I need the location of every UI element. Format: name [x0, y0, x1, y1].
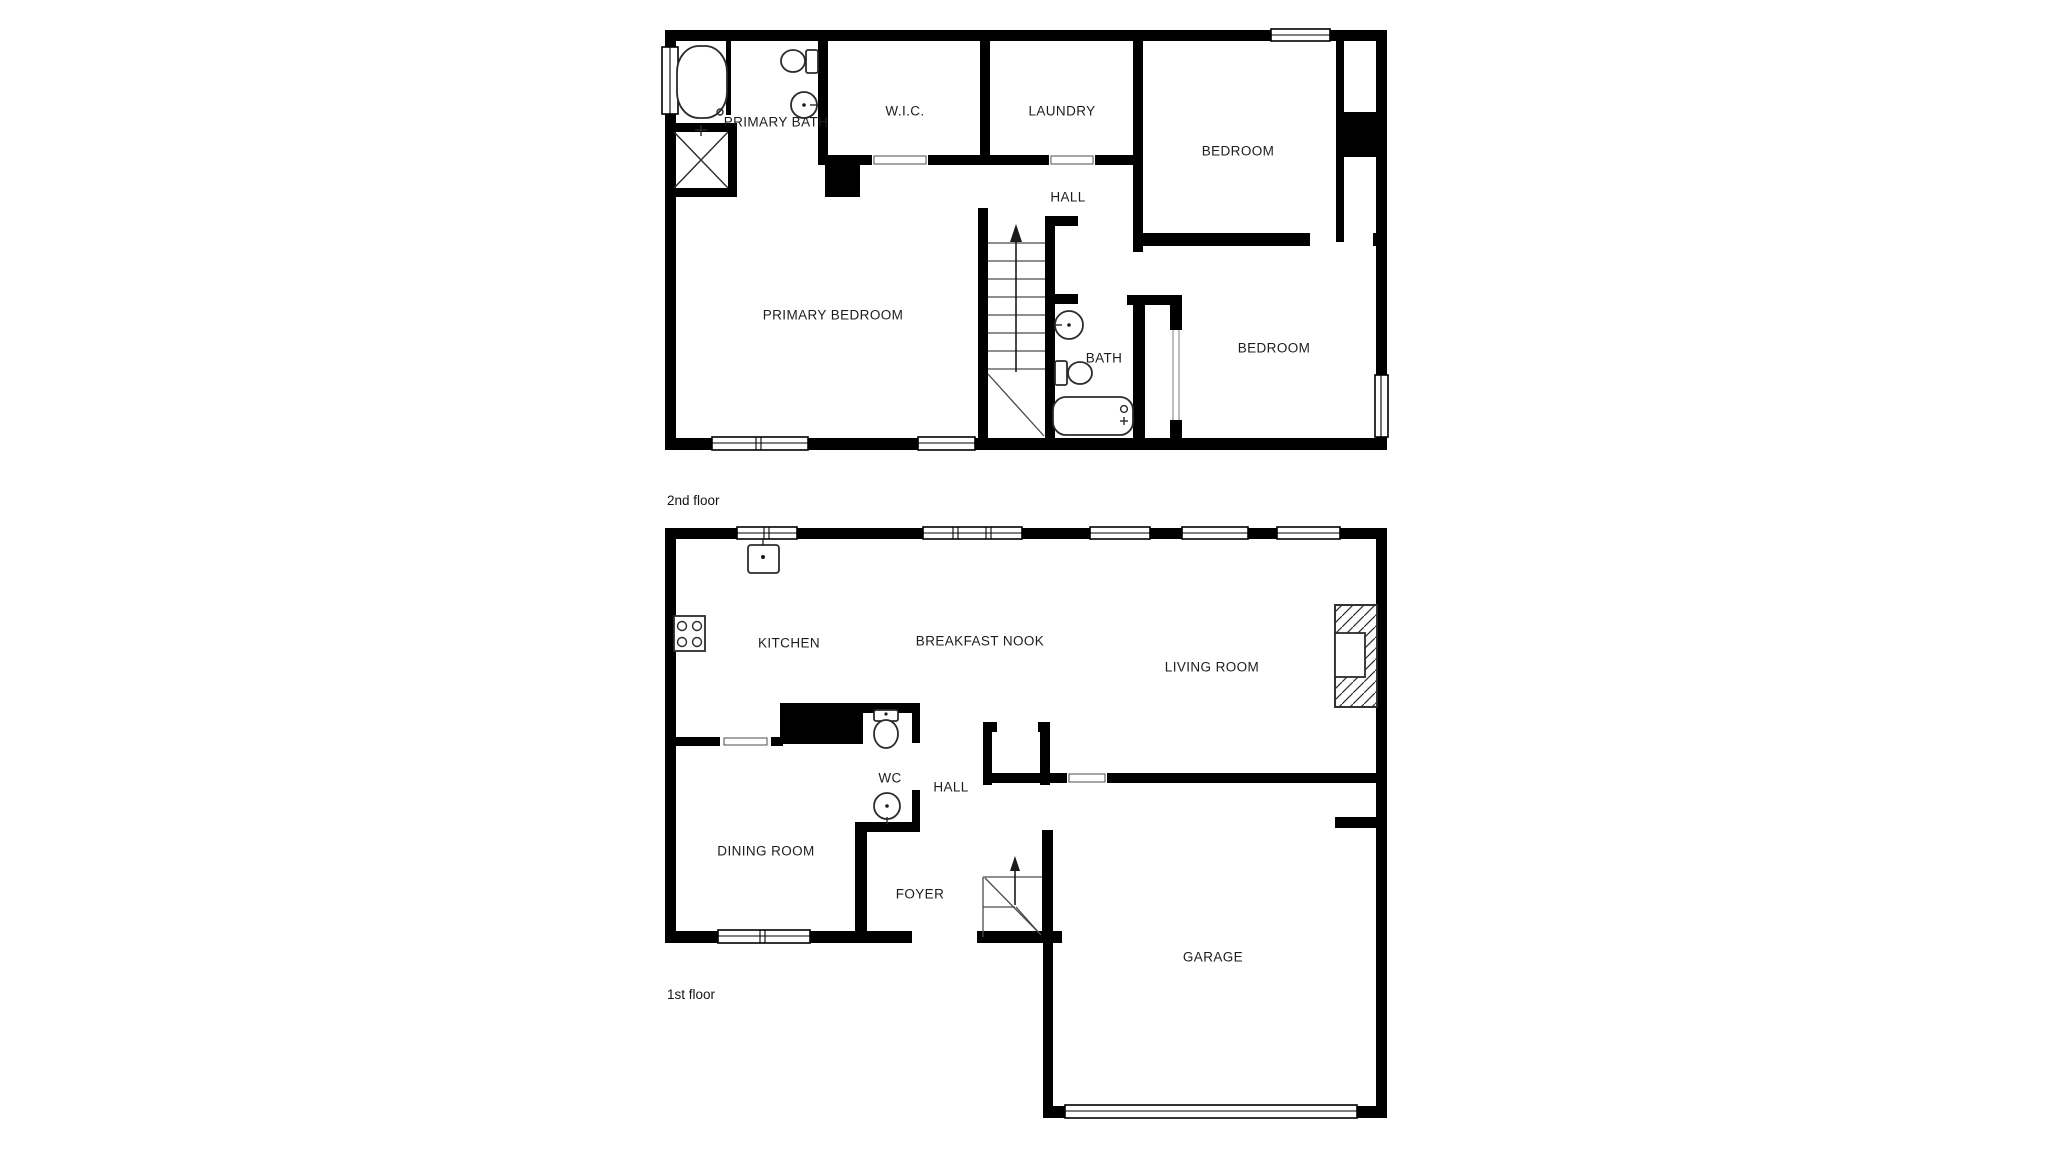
- door-leaf: [724, 738, 767, 745]
- stairs-up-icon: [988, 224, 1045, 436]
- sink-icon: [874, 793, 900, 824]
- bathtub-icon: [677, 46, 727, 118]
- floor-plan-drawing: PRIMARY BATH W.I.C. LAUNDRY BEDROOM HALL…: [0, 0, 2048, 1151]
- room-label-kitchen: KITCHEN: [758, 636, 820, 651]
- sink-icon: [1055, 311, 1083, 339]
- closet-slider: [1173, 330, 1179, 420]
- room-label-bedroom-top: BEDROOM: [1202, 144, 1275, 159]
- window: [1375, 375, 1388, 437]
- toilet-icon: [874, 710, 898, 748]
- room-label-bedroom-right: BEDROOM: [1238, 341, 1311, 356]
- garage-door: [1065, 1105, 1357, 1118]
- second-floor-plan: PRIMARY BATH W.I.C. LAUNDRY BEDROOM HALL…: [662, 29, 1388, 508]
- room-label-breakfast-nook: BREAKFAST NOOK: [916, 634, 1044, 649]
- room-label-primary-bedroom: PRIMARY BEDROOM: [763, 308, 904, 323]
- second-floor-walls: [665, 30, 1387, 450]
- window: [1277, 527, 1340, 539]
- kitchen-sink-icon: [748, 538, 779, 573]
- bath-tub-icon: [1053, 397, 1133, 435]
- fireplace-icon: [1335, 605, 1377, 707]
- room-label-hall-1f: HALL: [933, 780, 968, 795]
- room-label-wic: W.I.C.: [885, 104, 924, 119]
- room-label-hall-2f: HALL: [1050, 190, 1085, 205]
- stove-icon: [674, 616, 705, 651]
- room-label-wc: WC: [878, 771, 901, 786]
- room-label-primary-bath: PRIMARY BATH: [724, 115, 829, 130]
- window: [662, 47, 678, 114]
- room-label-dining-room: DINING ROOM: [717, 844, 814, 859]
- window: [718, 930, 810, 943]
- room-label-laundry: LAUNDRY: [1028, 104, 1095, 119]
- window: [1182, 527, 1248, 539]
- door-leaf: [874, 156, 926, 164]
- stairs-up-icon: [983, 856, 1042, 937]
- room-label-foyer: FOYER: [896, 887, 945, 902]
- room-label-bath: BATH: [1086, 351, 1123, 366]
- first-floor-plan: KITCHEN BREAKFAST NOOK LIVING ROOM WC HA…: [665, 527, 1387, 1118]
- window: [923, 527, 1022, 539]
- room-label-garage: GARAGE: [1183, 950, 1243, 965]
- door-leaf: [1051, 156, 1093, 164]
- window: [737, 527, 797, 539]
- floor-label-1st: 1st floor: [667, 987, 716, 1002]
- toilet-icon: [781, 50, 818, 73]
- window: [1090, 527, 1150, 539]
- floor-label-2nd: 2nd floor: [667, 493, 720, 508]
- shower-icon: [674, 125, 728, 188]
- window: [1271, 29, 1330, 41]
- door-leaf: [1069, 774, 1105, 782]
- window: [712, 437, 808, 450]
- window: [918, 437, 975, 450]
- room-label-living-room: LIVING ROOM: [1165, 660, 1259, 675]
- floor-plan-canvas: PRIMARY BATH W.I.C. LAUNDRY BEDROOM HALL…: [0, 0, 2048, 1151]
- first-floor-walls: [665, 528, 1387, 1118]
